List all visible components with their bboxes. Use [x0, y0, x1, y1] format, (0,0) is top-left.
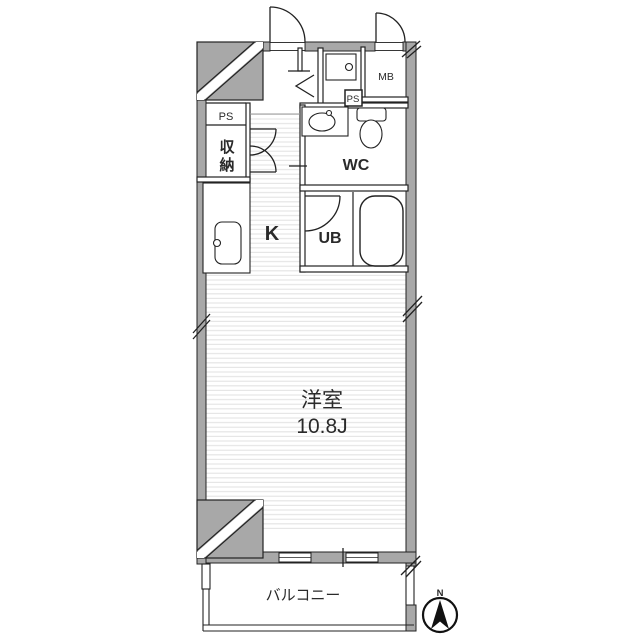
balcony-partition-left [202, 564, 210, 589]
corner-block-bottom-left [193, 496, 267, 562]
wc-ub-wall [300, 185, 408, 191]
balcony-right-post [406, 605, 416, 631]
compass: N [423, 588, 457, 632]
basin-faucet [327, 111, 332, 116]
mb-door-arc [376, 13, 405, 42]
closet-right-wall [246, 103, 250, 182]
label-kitchen: K [265, 223, 280, 245]
label-meter-box: MB [378, 71, 394, 83]
wash-basin [309, 113, 335, 131]
ub-door-arc [305, 196, 340, 231]
mb-bottom-wall [361, 97, 408, 102]
label-main-room-name: 洋室 [301, 389, 343, 412]
label-ps-right: PS [347, 94, 360, 105]
meter-box-opening [375, 43, 403, 51]
bathtub [360, 196, 403, 266]
entrance-door-arc [270, 7, 305, 42]
label-balcony: バルコニー [266, 587, 341, 604]
hall-washer-wall [318, 48, 323, 105]
label-storage-char2: 納 [219, 156, 234, 174]
label-wc: WC [343, 157, 370, 174]
floorplan-page: N PS 収 納 K WC UB MB PS 洋室 10.8J バルコニー [0, 0, 640, 639]
entrance-stub-wall [298, 48, 302, 71]
corner-block-top-left [193, 38, 267, 104]
washer-drain [346, 64, 353, 71]
label-unit-bath: UB [318, 230, 341, 247]
kitchen-faucet [214, 240, 221, 247]
closet-bottom-wall [197, 177, 250, 182]
label-storage-char1: 収 [219, 138, 235, 156]
left-wall [197, 42, 206, 564]
floorplan-drawing: N PS 収 納 K WC UB MB PS 洋室 10.8J バルコニー [0, 0, 640, 639]
ub-room-wall [300, 266, 408, 272]
label-ps-left: PS [219, 111, 234, 123]
toilet-bowl [360, 120, 382, 148]
compass-north-label: N [437, 588, 444, 599]
label-main-room-size: 10.8J [296, 415, 347, 438]
toilet-tank [357, 108, 386, 121]
entrance-chevron [296, 75, 314, 97]
